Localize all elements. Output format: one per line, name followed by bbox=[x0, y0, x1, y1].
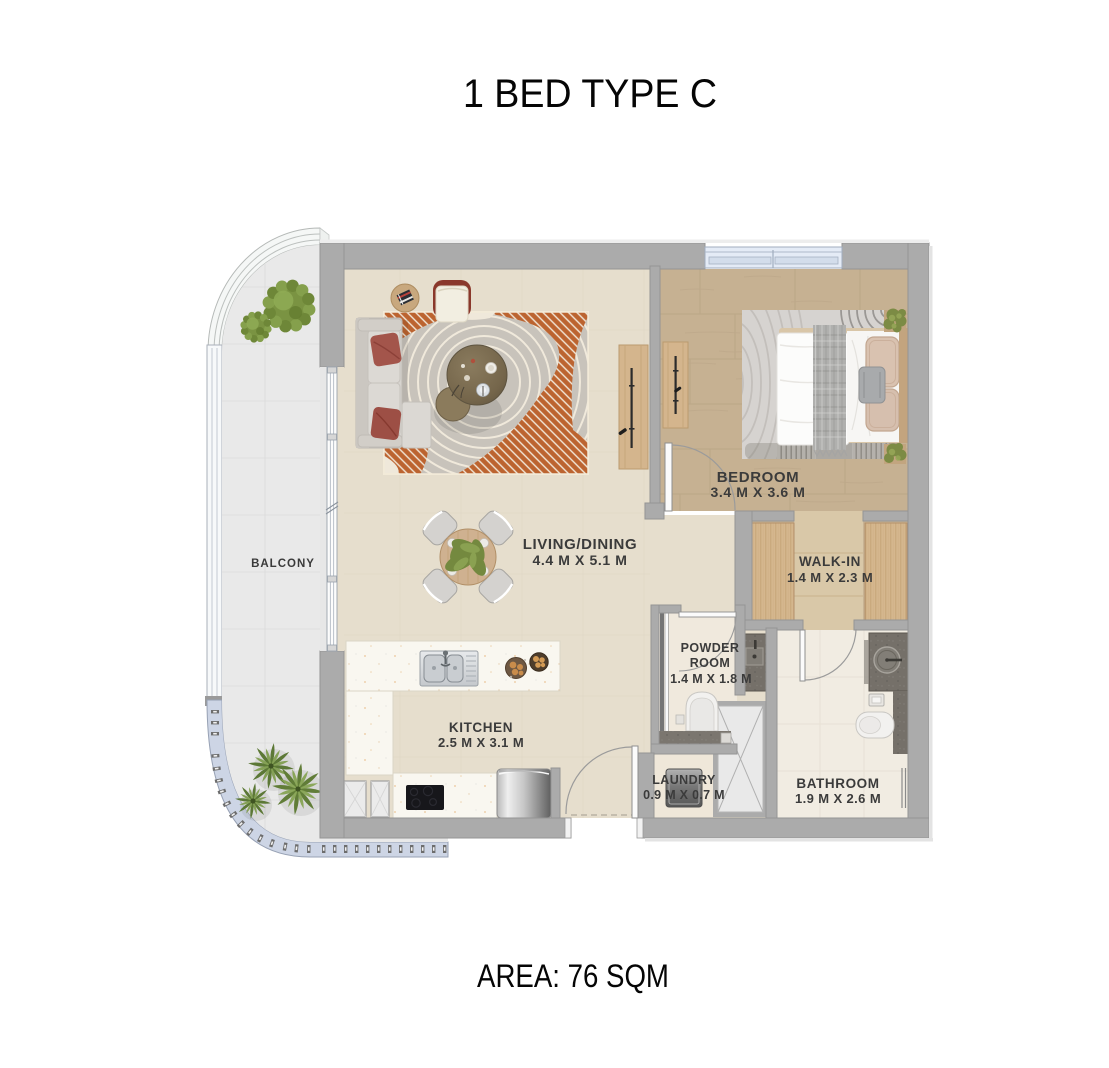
svg-text:1.4 M X 2.3 M: 1.4 M X 2.3 M bbox=[787, 570, 873, 585]
svg-text:POWDER: POWDER bbox=[681, 641, 740, 655]
svg-text:KITCHEN: KITCHEN bbox=[449, 720, 513, 735]
svg-text:1 BED TYPE C: 1 BED TYPE C bbox=[463, 72, 717, 116]
svg-text:3.4 M X 3.6 M: 3.4 M X 3.6 M bbox=[711, 484, 806, 500]
svg-text:4.4 M X 5.1 M: 4.4 M X 5.1 M bbox=[533, 552, 628, 568]
svg-text:1.4 M X 1.8 M: 1.4 M X 1.8 M bbox=[670, 672, 752, 686]
svg-text:2.5 M X 3.1 M: 2.5 M X 3.1 M bbox=[438, 735, 524, 750]
svg-text:LIVING/DINING: LIVING/DINING bbox=[523, 536, 637, 553]
svg-text:0.9 M X 0.7 M: 0.9 M X 0.7 M bbox=[643, 788, 725, 802]
svg-text:BALCONY: BALCONY bbox=[251, 558, 315, 570]
svg-text:LAUNDRY: LAUNDRY bbox=[652, 773, 716, 787]
svg-text:AREA: 76 SQM: AREA: 76 SQM bbox=[477, 959, 669, 995]
svg-text:WALK-IN: WALK-IN bbox=[799, 554, 861, 569]
svg-text:ROOM: ROOM bbox=[690, 656, 731, 670]
svg-text:1.9 M X 2.6 M: 1.9 M X 2.6 M bbox=[795, 791, 881, 806]
svg-text:BATHROOM: BATHROOM bbox=[796, 776, 879, 791]
